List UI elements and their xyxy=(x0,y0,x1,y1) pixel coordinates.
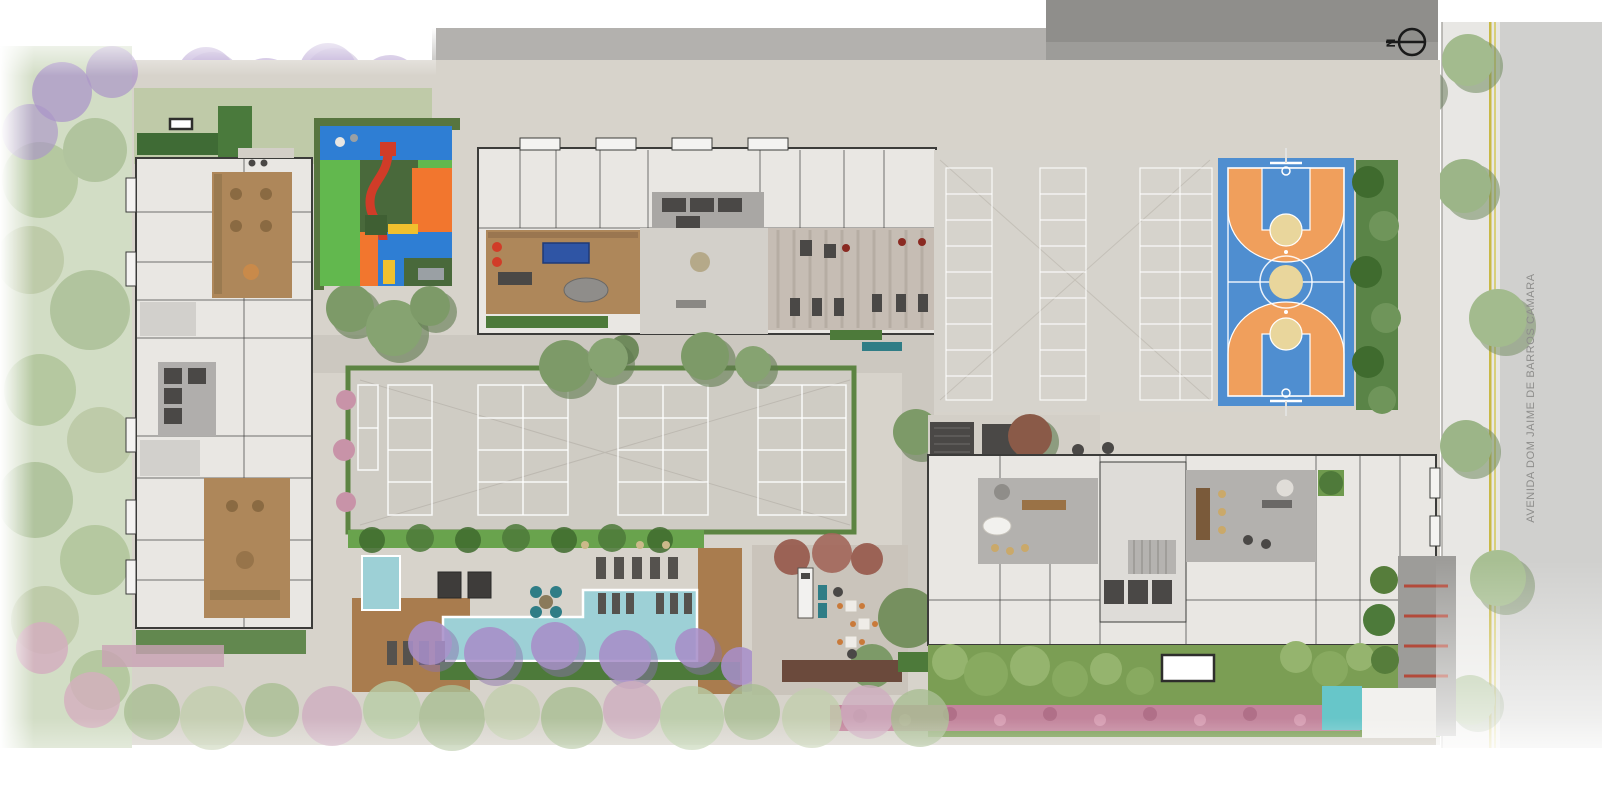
pool-table xyxy=(543,243,589,263)
bench-row-teal xyxy=(862,342,902,351)
planter-hedge-2 xyxy=(830,330,882,340)
foosball-table xyxy=(498,272,532,285)
dining-table xyxy=(564,278,608,302)
dark-pavement-top xyxy=(1046,0,1438,42)
northwest-hedge xyxy=(137,133,219,155)
long-table xyxy=(1196,488,1210,540)
pink-hedge-west xyxy=(102,645,224,667)
planter-hedge xyxy=(486,316,608,328)
apartment-room xyxy=(140,440,200,476)
barbecue-grill xyxy=(468,572,491,598)
free-throw-circle-top xyxy=(1270,214,1302,246)
street-name-label: AVENIDA DOM JAIME DE BARROS CAMARA xyxy=(1525,273,1537,522)
parking-lot xyxy=(934,150,1214,412)
island-counter xyxy=(1022,500,1066,510)
left-tower-building xyxy=(126,148,312,654)
free-throw-circle-bottom xyxy=(1270,318,1302,350)
bench-teal xyxy=(818,603,827,618)
pool-area xyxy=(348,524,766,694)
kids-playground xyxy=(314,118,460,290)
north-building xyxy=(478,138,936,351)
blank-sign-lawn xyxy=(1162,655,1214,681)
spa-tub xyxy=(983,517,1011,535)
kids-pool xyxy=(362,556,400,610)
playground-equipment-yellow xyxy=(383,260,395,284)
stairwell xyxy=(1128,540,1176,574)
playground-slide-top xyxy=(380,142,396,156)
playground-structure xyxy=(365,215,387,235)
lobby-corridor xyxy=(640,228,768,334)
playground-bridge-yellow xyxy=(388,224,418,234)
round-table xyxy=(1276,479,1294,497)
center-circle xyxy=(1269,265,1303,299)
blank-sign-garden xyxy=(170,119,192,129)
barbecue-grill xyxy=(438,572,461,598)
court-side-hedge xyxy=(1350,160,1401,414)
site-plan-canvas: AVENIDA DOM JAIME DE BARROS CAMARA xyxy=(0,0,1602,800)
basketball-court xyxy=(1218,148,1401,416)
planting-bed xyxy=(782,660,902,682)
apartment-room xyxy=(140,302,196,336)
playground-patch-orange-2 xyxy=(360,232,378,286)
sofa xyxy=(1262,500,1292,508)
playground-equipment-gray xyxy=(418,268,444,280)
bench-teal xyxy=(818,585,827,600)
north-label: N xyxy=(1384,39,1398,48)
